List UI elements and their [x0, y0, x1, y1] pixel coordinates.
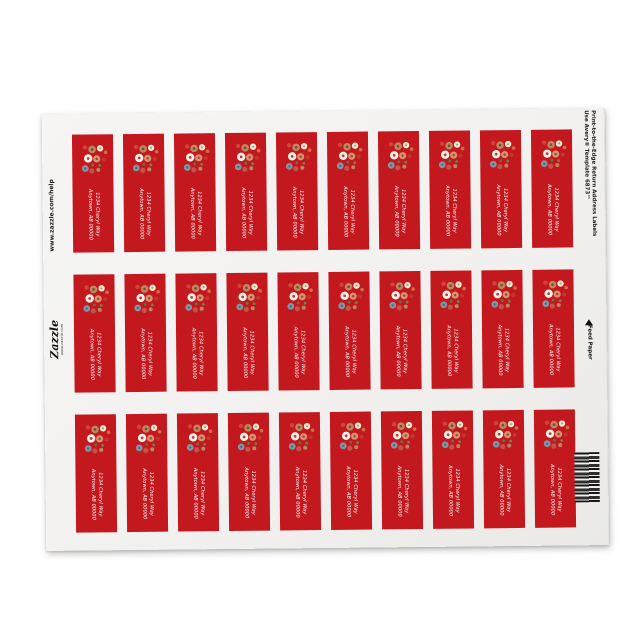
address-line-2: Anytown, AB 00000: [87, 189, 94, 240]
address-line-2: Anytown, AB 00000: [242, 467, 249, 518]
address-line-2: Anytown, AB 00000: [496, 325, 503, 376]
address-line-1: 1234 Cheryl Way: [144, 188, 151, 239]
feed-paper-label: Feed Paper: [586, 325, 592, 360]
address-line-2: Anytown, AB 00000: [392, 186, 399, 237]
address-line-2: Anytown, AB 00000: [443, 185, 450, 236]
floral-bouquet-icon: [487, 277, 517, 321]
floral-bouquet-icon: [386, 418, 416, 462]
address-line-1: 1234 Cheryl Way: [300, 467, 307, 518]
address-line-2: Anytown, AB 00000: [445, 325, 452, 376]
address-label: 1234 Cheryl Way Anytown, AB 00000: [378, 131, 420, 249]
label-address: 1234 Cheryl Way Anytown, AB 00000: [139, 328, 153, 379]
label-address: 1234 Cheryl Way Anytown, AB 00000: [344, 466, 358, 517]
floral-bouquet-icon: [539, 416, 569, 460]
address-line-1: 1234 Cheryl Way: [195, 188, 202, 239]
address-line-1: 1234 Cheryl Way: [502, 325, 509, 376]
address-line-1: 1234 Cheryl Way: [348, 186, 355, 237]
address-line-2: Anytown, AB 00000: [497, 465, 504, 516]
floral-bouquet-icon: [131, 421, 161, 465]
label-address: 1234 Cheryl Way Anytown, AB 00000: [445, 325, 459, 376]
address-line-2: Anytown, AB 00000: [548, 464, 555, 515]
label-address: 1234 Cheryl Way Anytown, AB 00000: [446, 465, 460, 516]
floral-bouquet-icon: [80, 421, 110, 465]
address-label: 1234 Cheryl Way Anytown, AB 00000: [124, 274, 166, 392]
address-line-2: Anytown, AB 00000: [293, 467, 300, 518]
address-label: 1234 Cheryl Way Anytown, AB 00000: [327, 132, 369, 250]
address-label: 1234 Cheryl Way Anytown, AB 00000: [72, 134, 114, 252]
address-label: 1234 Cheryl Way Anytown, AB 00000: [225, 133, 267, 251]
address-label: 1234 Cheryl Way Anytown, AB 00000: [430, 270, 472, 388]
address-label: 1234 Cheryl Way Anytown, AB 00000: [379, 271, 421, 389]
address-label: 1234 Cheryl Way Anytown, AB 00000: [330, 412, 372, 530]
floral-bouquet-icon: [129, 141, 159, 185]
address-line-2: Anytown, AB 00000: [343, 326, 350, 377]
address-label: 1234 Cheryl Way Anytown, AB 00000: [328, 272, 370, 390]
address-line-1: 1234 Cheryl Way: [246, 187, 253, 238]
address-line-1: 1234 Cheryl Way: [93, 189, 100, 240]
address-line-1: 1234 Cheryl Way: [147, 468, 154, 519]
floral-bouquet-icon: [232, 280, 262, 324]
feed-paper-indicator: Feed Paper: [578, 306, 601, 358]
address-line-1: 1234 Cheryl Way: [249, 467, 256, 518]
address-label: 1234 Cheryl Way Anytown, AB 00000: [480, 130, 522, 248]
floral-bouquet-icon: [538, 276, 568, 320]
address-line-1: 1234 Cheryl Way: [504, 465, 511, 516]
floral-bouquet-icon: [79, 281, 109, 325]
address-line-2: Anytown, AB 00000: [189, 188, 196, 239]
address-line-1: 1234 Cheryl Way: [94, 329, 101, 380]
zazzle-logo: Zazzle www.zazzle.com: [44, 306, 69, 372]
address-line-1: 1234 Cheryl Way: [402, 466, 409, 517]
label-address: 1234 Cheryl Way Anytown, AB 00000: [342, 186, 356, 237]
label-address: 1234 Cheryl Way Anytown, AB 00000: [497, 465, 511, 516]
address-label: 1234 Cheryl Way Anytown, AB 00000: [175, 273, 217, 391]
address-line-2: Anytown, AB 00000: [89, 469, 96, 520]
address-line-1: 1234 Cheryl Way: [145, 328, 152, 379]
address-label: 1234 Cheryl Way Anytown, AB 00000: [228, 413, 270, 531]
address-line-1: 1234 Cheryl Way: [297, 187, 304, 238]
address-line-2: Anytown, AB 00000: [547, 324, 554, 375]
label-address: 1234 Cheryl Way Anytown, AB 00000: [87, 189, 101, 240]
address-line-1: 1234 Cheryl Way: [555, 464, 562, 515]
address-line-2: Anytown, AB 00000: [88, 329, 95, 380]
address-line-1: 1234 Cheryl Way: [96, 469, 103, 520]
address-label: 1234 Cheryl Way Anytown, AB 00000: [429, 130, 471, 248]
address-line-1: 1234 Cheryl Way: [501, 185, 508, 236]
label-address: 1234 Cheryl Way Anytown, AB 00000: [191, 468, 205, 519]
address-line-2: Anytown, AB 00000: [140, 468, 147, 519]
floral-bouquet-icon: [180, 140, 210, 184]
floral-bouquet-icon: [334, 279, 364, 323]
address-line-2: Anytown, AB 00000: [395, 466, 402, 517]
address-line-1: 1234 Cheryl Way: [450, 185, 457, 236]
floral-bouquet-icon: [437, 418, 467, 462]
zazzle-logo-url: www.zazzle.com: [59, 319, 63, 358]
address-label: 1234 Cheryl Way Anytown, AB 00000: [534, 409, 576, 527]
address-line-1: 1234 Cheryl Way: [349, 326, 356, 377]
label-address: 1234 Cheryl Way Anytown, AB 00000: [140, 468, 154, 519]
floral-bouquet-icon: [283, 279, 313, 323]
template-caption: Print-to-the-Edge Return Address Labels …: [578, 110, 601, 236]
address-label: 1234 Cheryl Way Anytown, AB 00000: [531, 129, 573, 247]
floral-bouquet-icon: [233, 420, 263, 464]
label-address: 1234 Cheryl Way Anytown, AB 00000: [547, 324, 561, 375]
floral-bouquet-icon: [436, 278, 466, 322]
caption-line-1: Print-to-the-Edge Return Address Labels: [589, 110, 597, 236]
floral-bouquet-icon: [284, 419, 314, 463]
caption-line-2: Use Avery® Template 6873™: [582, 110, 590, 236]
label-address: 1234 Cheryl Way Anytown, AB 00000: [545, 184, 559, 235]
floral-bouquet-icon: [335, 419, 365, 463]
floral-bouquet-icon: [333, 139, 363, 183]
label-address: 1234 Cheryl Way Anytown, AB 00000: [88, 329, 102, 380]
address-line-2: Anytown, AB 00000: [139, 328, 146, 379]
address-line-2: Anytown, AB 00000: [446, 465, 453, 516]
address-label: 1234 Cheryl Way Anytown, AB 00000: [481, 270, 523, 388]
floral-bouquet-icon: [78, 141, 108, 185]
address-line-1: 1234 Cheryl Way: [400, 326, 407, 377]
label-address: 1234 Cheryl Way Anytown, AB 00000: [395, 466, 409, 517]
label-address: 1234 Cheryl Way Anytown, AB 00000: [443, 185, 457, 236]
address-label: 1234 Cheryl Way Anytown, AB 00000: [279, 412, 321, 530]
address-line-2: Anytown, AB 00000: [138, 188, 145, 239]
address-label: 1234 Cheryl Way Anytown, AB 00000: [177, 413, 219, 531]
label-address: 1234 Cheryl Way Anytown, AB 00000: [343, 326, 357, 377]
help-url-text: www.zazzle.com/help: [42, 150, 61, 280]
label-address: 1234 Cheryl Way Anytown, AB 00000: [241, 327, 255, 378]
address-label: 1234 Cheryl Way Anytown, AB 00000: [532, 269, 574, 387]
address-line-1: 1234 Cheryl Way: [198, 468, 205, 519]
address-line-1: 1234 Cheryl Way: [298, 327, 305, 378]
label-address: 1234 Cheryl Way Anytown, AB 00000: [190, 328, 204, 379]
address-line-2: Anytown, AB 00000: [191, 468, 198, 519]
address-label: 1234 Cheryl Way Anytown, AB 00000: [432, 410, 474, 528]
address-line-1: 1234 Cheryl Way: [453, 465, 460, 516]
address-label: 1234 Cheryl Way Anytown, AB 00000: [276, 132, 318, 250]
label-address: 1234 Cheryl Way Anytown, AB 00000: [189, 188, 203, 239]
address-label: 1234 Cheryl Way Anytown, AB 00000: [73, 274, 115, 392]
address-line-1: 1234 Cheryl Way: [196, 328, 203, 379]
address-line-1: 1234 Cheryl Way: [399, 186, 406, 237]
address-label: 1234 Cheryl Way Anytown, AB 00000: [483, 410, 525, 528]
labels-grid: 1234 Cheryl Way Anytown, AB 00000 1234 C…: [72, 129, 576, 532]
address-line-2: Anytown, AB 00000: [494, 185, 501, 236]
label-address: 1234 Cheryl Way Anytown, AB 00000: [89, 469, 103, 520]
label-address: 1234 Cheryl Way Anytown, AB 00000: [496, 325, 510, 376]
floral-bouquet-icon: [434, 138, 464, 182]
label-address: 1234 Cheryl Way Anytown, AB 00000: [291, 187, 305, 238]
address-label: 1234 Cheryl Way Anytown, AB 00000: [226, 273, 268, 391]
floral-bouquet-icon: [485, 137, 515, 181]
floral-bouquet-icon: [536, 136, 566, 180]
address-line-2: Anytown, AB 00000: [190, 328, 197, 379]
label-address: 1234 Cheryl Way Anytown, AB 00000: [548, 464, 562, 515]
address-line-2: Anytown, AB 00000: [342, 186, 349, 237]
floral-bouquet-icon: [231, 140, 261, 184]
floral-bouquet-icon: [488, 417, 518, 461]
address-label: 1234 Cheryl Way Anytown, AB 00000: [277, 272, 319, 390]
address-line-2: Anytown, AB 00000: [292, 327, 299, 378]
address-line-2: Anytown, AB 00000: [394, 326, 401, 377]
address-line-1: 1234 Cheryl Way: [553, 324, 560, 375]
floral-bouquet-icon: [384, 138, 414, 182]
address-label: 1234 Cheryl Way Anytown, AB 00000: [381, 411, 423, 529]
label-address: 1234 Cheryl Way Anytown, AB 00000: [292, 327, 306, 378]
address-label: 1234 Cheryl Way Anytown, AB 00000: [126, 414, 168, 532]
floral-bouquet-icon: [130, 281, 160, 325]
barcode: [574, 452, 600, 502]
help-url-label: www.zazzle.com/help: [48, 179, 56, 251]
floral-bouquet-icon: [182, 420, 212, 464]
label-sheet: www.zazzle.com/help Zazzle www.zazzle.co…: [42, 108, 610, 551]
label-address: 1234 Cheryl Way Anytown, AB 00000: [392, 186, 406, 237]
floral-bouquet-icon: [385, 278, 415, 322]
address-line-1: 1234 Cheryl Way: [552, 184, 559, 235]
floral-bouquet-icon: [181, 280, 211, 324]
address-line-2: Anytown, AB 00000: [291, 187, 298, 238]
address-line-2: Anytown, AB 00000: [344, 466, 351, 517]
address-label: 1234 Cheryl Way Anytown, AB 00000: [75, 414, 117, 532]
label-address: 1234 Cheryl Way Anytown, AB 00000: [240, 187, 254, 238]
label-address: 1234 Cheryl Way Anytown, AB 00000: [242, 467, 256, 518]
address-line-1: 1234 Cheryl Way: [247, 327, 254, 378]
label-address: 1234 Cheryl Way Anytown, AB 00000: [293, 467, 307, 518]
address-line-1: 1234 Cheryl Way: [351, 466, 358, 517]
zazzle-logo-text: Zazzle: [48, 319, 59, 358]
label-address: 1234 Cheryl Way Anytown, AB 00000: [138, 188, 152, 239]
address-line-2: Anytown, AB 00000: [240, 187, 247, 238]
floral-bouquet-icon: [282, 139, 312, 183]
address-label: 1234 Cheryl Way Anytown, AB 00000: [123, 134, 165, 252]
label-address: 1234 Cheryl Way Anytown, AB 00000: [494, 185, 508, 236]
product-mockup-page: { "page": { "background": "#ffffff" }, "…: [0, 0, 644, 644]
address-label: 1234 Cheryl Way Anytown, AB 00000: [174, 133, 216, 251]
address-line-2: Anytown, AB 00000: [241, 327, 248, 378]
address-line-1: 1234 Cheryl Way: [451, 325, 458, 376]
label-address: 1234 Cheryl Way Anytown, AB 00000: [394, 326, 408, 377]
address-line-2: Anytown, AB 00000: [545, 184, 552, 235]
